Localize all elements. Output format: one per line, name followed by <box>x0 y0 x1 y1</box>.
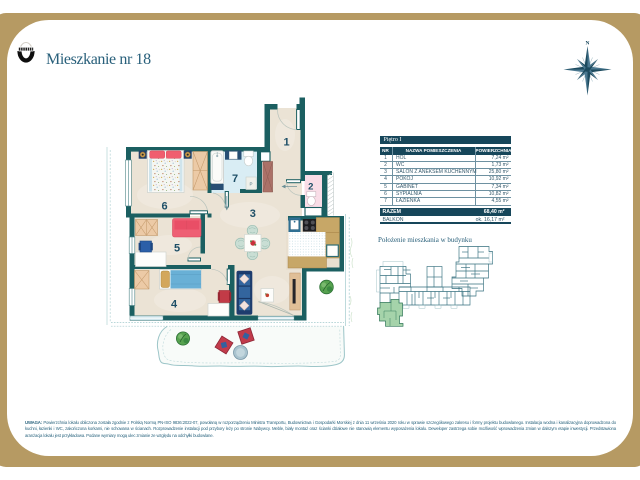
svg-text:1: 1 <box>283 137 289 149</box>
svg-text:3: 3 <box>250 208 256 220</box>
svg-text:2: 2 <box>308 182 313 193</box>
svg-text:5: 5 <box>174 243 180 255</box>
svg-text:P: P <box>249 182 252 187</box>
svg-text:6: 6 <box>161 201 167 213</box>
svg-text:4: 4 <box>171 299 178 311</box>
svg-text:7: 7 <box>232 173 238 185</box>
